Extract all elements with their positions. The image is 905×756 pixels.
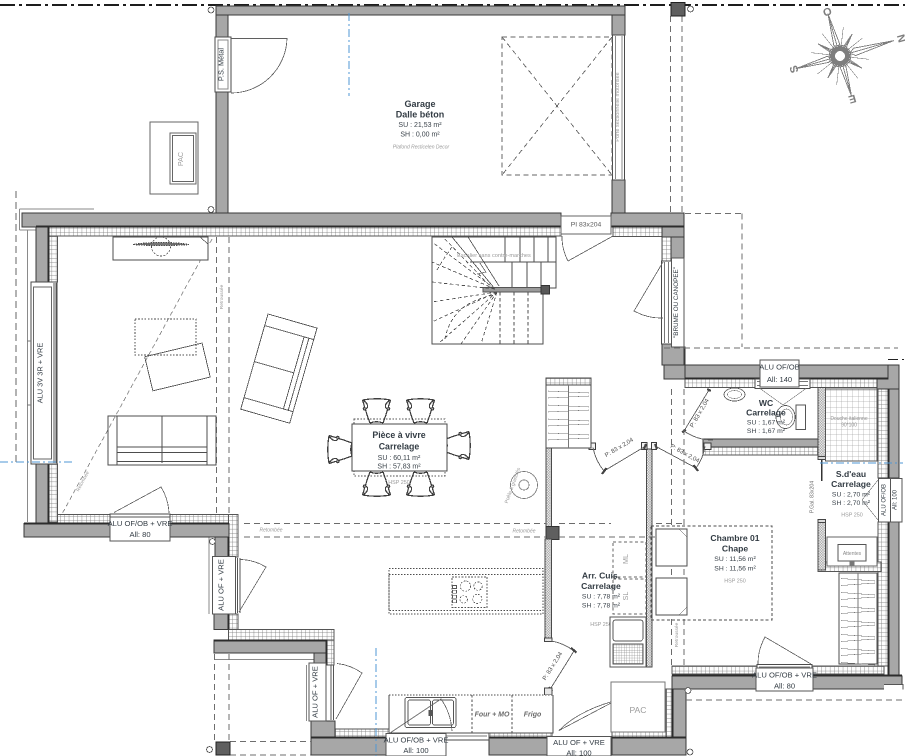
svg-text:Plafond Recticelen Decor: Plafond Recticelen Decor [393, 145, 450, 151]
svg-text:PAC: PAC [176, 152, 185, 166]
svg-text:Dalle béton: Dalle béton [396, 110, 445, 120]
svg-text:P.S. Métal: P.S. Métal [217, 48, 226, 81]
svg-text:Chape: Chape [722, 544, 748, 554]
svg-text:HSP 250: HSP 250 [590, 622, 611, 628]
svg-text:SU : 7,78 m²: SU : 7,78 m² [582, 594, 621, 601]
svg-text:SH : 2,70 m²: SH : 2,70 m² [832, 500, 871, 507]
svg-text:SU : 60,11 m²: SU : 60,11 m² [378, 455, 421, 462]
svg-text:SH : 57,83 m²: SH : 57,83 m² [377, 464, 421, 471]
svg-text:ALU 3V 3R + VRE: ALU 3V 3R + VRE [36, 343, 45, 404]
svg-text:Escalier sans contre-marches: Escalier sans contre-marches [457, 253, 531, 259]
svg-text:HSP 250: HSP 250 [841, 513, 862, 519]
svg-text:All: 100: All: 100 [893, 489, 899, 510]
svg-text:PAC: PAC [629, 705, 646, 715]
svg-text:ALU OF + VRE: ALU OF + VRE [553, 738, 605, 747]
svg-text:ALU OF/OB: ALU OF/OB [882, 484, 888, 516]
svg-text:Carrelage: Carrelage [831, 479, 871, 489]
svg-text:ALU OF/OB + VRE: ALU OF/OB + VRE [384, 736, 449, 745]
svg-text:Retombée: Retombée [512, 529, 535, 535]
svg-text:Retroussée: Retroussée [219, 284, 225, 309]
svg-text:SH : 0,00 m²: SH : 0,00 m² [400, 132, 440, 139]
svg-text:ALU OF + VRE: ALU OF + VRE [311, 666, 320, 718]
svg-text:All: 80: All: 80 [774, 682, 795, 691]
svg-text:Retroussée: Retroussée [674, 622, 680, 647]
svg-text:Chambre 01: Chambre 01 [710, 533, 759, 543]
svg-text:Four + MO: Four + MO [475, 712, 510, 719]
svg-text:SU : 2,70 m²: SU : 2,70 m² [832, 492, 871, 499]
svg-text:ALU OF + VRE: ALU OF + VRE [217, 559, 226, 611]
svg-text:"BRUME OU CANOPEE": "BRUME OU CANOPEE" [673, 267, 680, 338]
svg-text:Attentes: Attentes [843, 551, 862, 557]
svg-text:SU : 11,56 m²: SU : 11,56 m² [714, 556, 756, 563]
svg-text:ALU OF/OB: ALU OF/OB [759, 363, 800, 372]
svg-text:Pièce à vivre: Pièce à vivre [372, 430, 425, 440]
svg-text:SU : 21,53 m²: SU : 21,53 m² [398, 122, 442, 129]
svg-text:All: 100: All: 100 [403, 746, 428, 755]
svg-text:HSP 250: HSP 250 [724, 579, 745, 585]
svg-text:All: 100: All: 100 [566, 749, 591, 756]
svg-text:Carrelage: Carrelage [746, 408, 786, 418]
svg-text:WC: WC [759, 398, 773, 408]
svg-text:SU : 1,67 m²: SU : 1,67 m² [747, 420, 786, 427]
svg-text:SL: SL [621, 592, 630, 601]
svg-text:Carrelage: Carrelage [379, 442, 420, 452]
svg-text:S.d'eau: S.d'eau [836, 469, 866, 479]
svg-text:P.Gal. 83x204: P.Gal. 83x204 [810, 481, 816, 513]
svg-text:SH : 1,67 m²: SH : 1,67 m² [747, 428, 786, 435]
svg-text:Douche italienne: Douche italienne [830, 416, 867, 422]
svg-text:All: 80: All: 80 [129, 530, 150, 539]
svg-text:90*100: 90*100 [841, 423, 857, 429]
svg-text:PI 83x204: PI 83x204 [571, 222, 602, 229]
svg-text:Garage: Garage [404, 99, 435, 109]
svg-text:Carrelage: Carrelage [581, 581, 621, 591]
svg-text:Retombée: Retombée [259, 528, 282, 534]
svg-text:HSP 250: HSP 250 [388, 480, 409, 486]
svg-text:ALU OF/OB + VRE: ALU OF/OB + VRE [752, 671, 817, 680]
svg-text:Frigo: Frigo [524, 712, 542, 719]
svg-text:Porte sectionnelle motorisée: Porte sectionnelle motorisée [615, 72, 621, 141]
svg-text:SH : 11,56 m²: SH : 11,56 m² [714, 566, 756, 573]
svg-text:ALU OF/OB + VRE: ALU OF/OB + VRE [108, 519, 173, 528]
svg-text:SH : 7,78 m²: SH : 7,78 m² [582, 603, 621, 610]
svg-text:All: 140: All: 140 [767, 375, 792, 384]
svg-text:ML: ML [621, 554, 630, 564]
